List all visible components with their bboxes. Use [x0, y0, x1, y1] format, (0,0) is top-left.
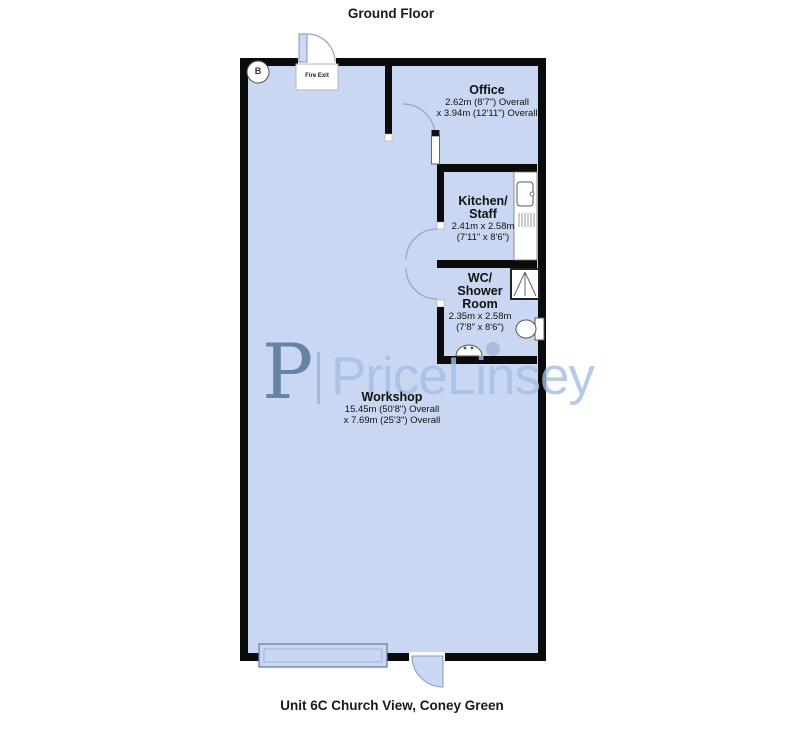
- workshop-label: Workshop 15.45m (50'8") Overall x 7.69m …: [344, 391, 441, 426]
- kitchen-wc-divider-wall: [437, 260, 537, 268]
- office-door-stop: [432, 130, 440, 136]
- kitchen-name-2: Staff: [452, 208, 515, 221]
- workshop-dim-1: 15.45m (50'8") Overall: [344, 404, 441, 415]
- kitchen-left-wall: [437, 164, 444, 222]
- corner-badge-label: B: [255, 66, 262, 76]
- page-title: Ground Floor: [348, 6, 434, 21]
- office-dim-1: 2.62m (8'7") Overall: [436, 97, 537, 108]
- kitchen-dim-1: 2.41m x 2.58m: [452, 221, 515, 232]
- office-left-wall-jamb: [385, 134, 392, 141]
- rear-door-swing: [412, 656, 443, 687]
- office-bottom-wall: [438, 164, 537, 172]
- office-door-leaf: [432, 136, 440, 164]
- basin-tap-left: [464, 347, 467, 350]
- fire-exit-label: Fire Exit: [305, 73, 329, 79]
- kitchen-door-jamb: [437, 222, 444, 229]
- office-dim-2: x 3.94m (12'11") Overall: [436, 108, 537, 119]
- workshop-name: Workshop: [344, 391, 441, 404]
- office-name: Office: [436, 84, 537, 97]
- wc-dim-2: (7'8" x 8'6"): [449, 322, 512, 333]
- wc-label: WC/ Shower Room 2.35m x 2.58m (7'8" x 8'…: [449, 272, 512, 333]
- wc-name-3: Room: [449, 298, 512, 311]
- kitchen-dim-2: (7'11" x 8'6"): [452, 232, 515, 243]
- fire-exit-door-leaf: [299, 34, 307, 62]
- wc-dim-1: 2.35m x 2.58m: [449, 311, 512, 322]
- address-caption: Unit 6C Church View, Coney Green: [280, 698, 504, 713]
- office-left-wall: [385, 62, 392, 134]
- basin-tap-right: [471, 347, 474, 350]
- toilet-bowl: [516, 320, 536, 338]
- roller-door: [259, 644, 387, 667]
- floor-drain: [486, 342, 500, 356]
- kitchen-sink-tap: [530, 192, 534, 196]
- wc-door-jamb: [437, 300, 444, 307]
- workshop-dim-2: x 7.69m (25'3") Overall: [344, 415, 441, 426]
- office-label: Office 2.62m (8'7") Overall x 3.94m (12'…: [436, 84, 537, 119]
- floorplan-page: P PriceLinsey Ground Floor Unit 6C Churc…: [0, 0, 803, 741]
- kitchen-label: Kitchen/ Staff 2.41m x 2.58m (7'11" x 8'…: [452, 195, 515, 243]
- wc-bottom-wall: [437, 356, 537, 364]
- floorplan-drawing: [0, 0, 803, 741]
- wc-left-wall: [437, 307, 444, 356]
